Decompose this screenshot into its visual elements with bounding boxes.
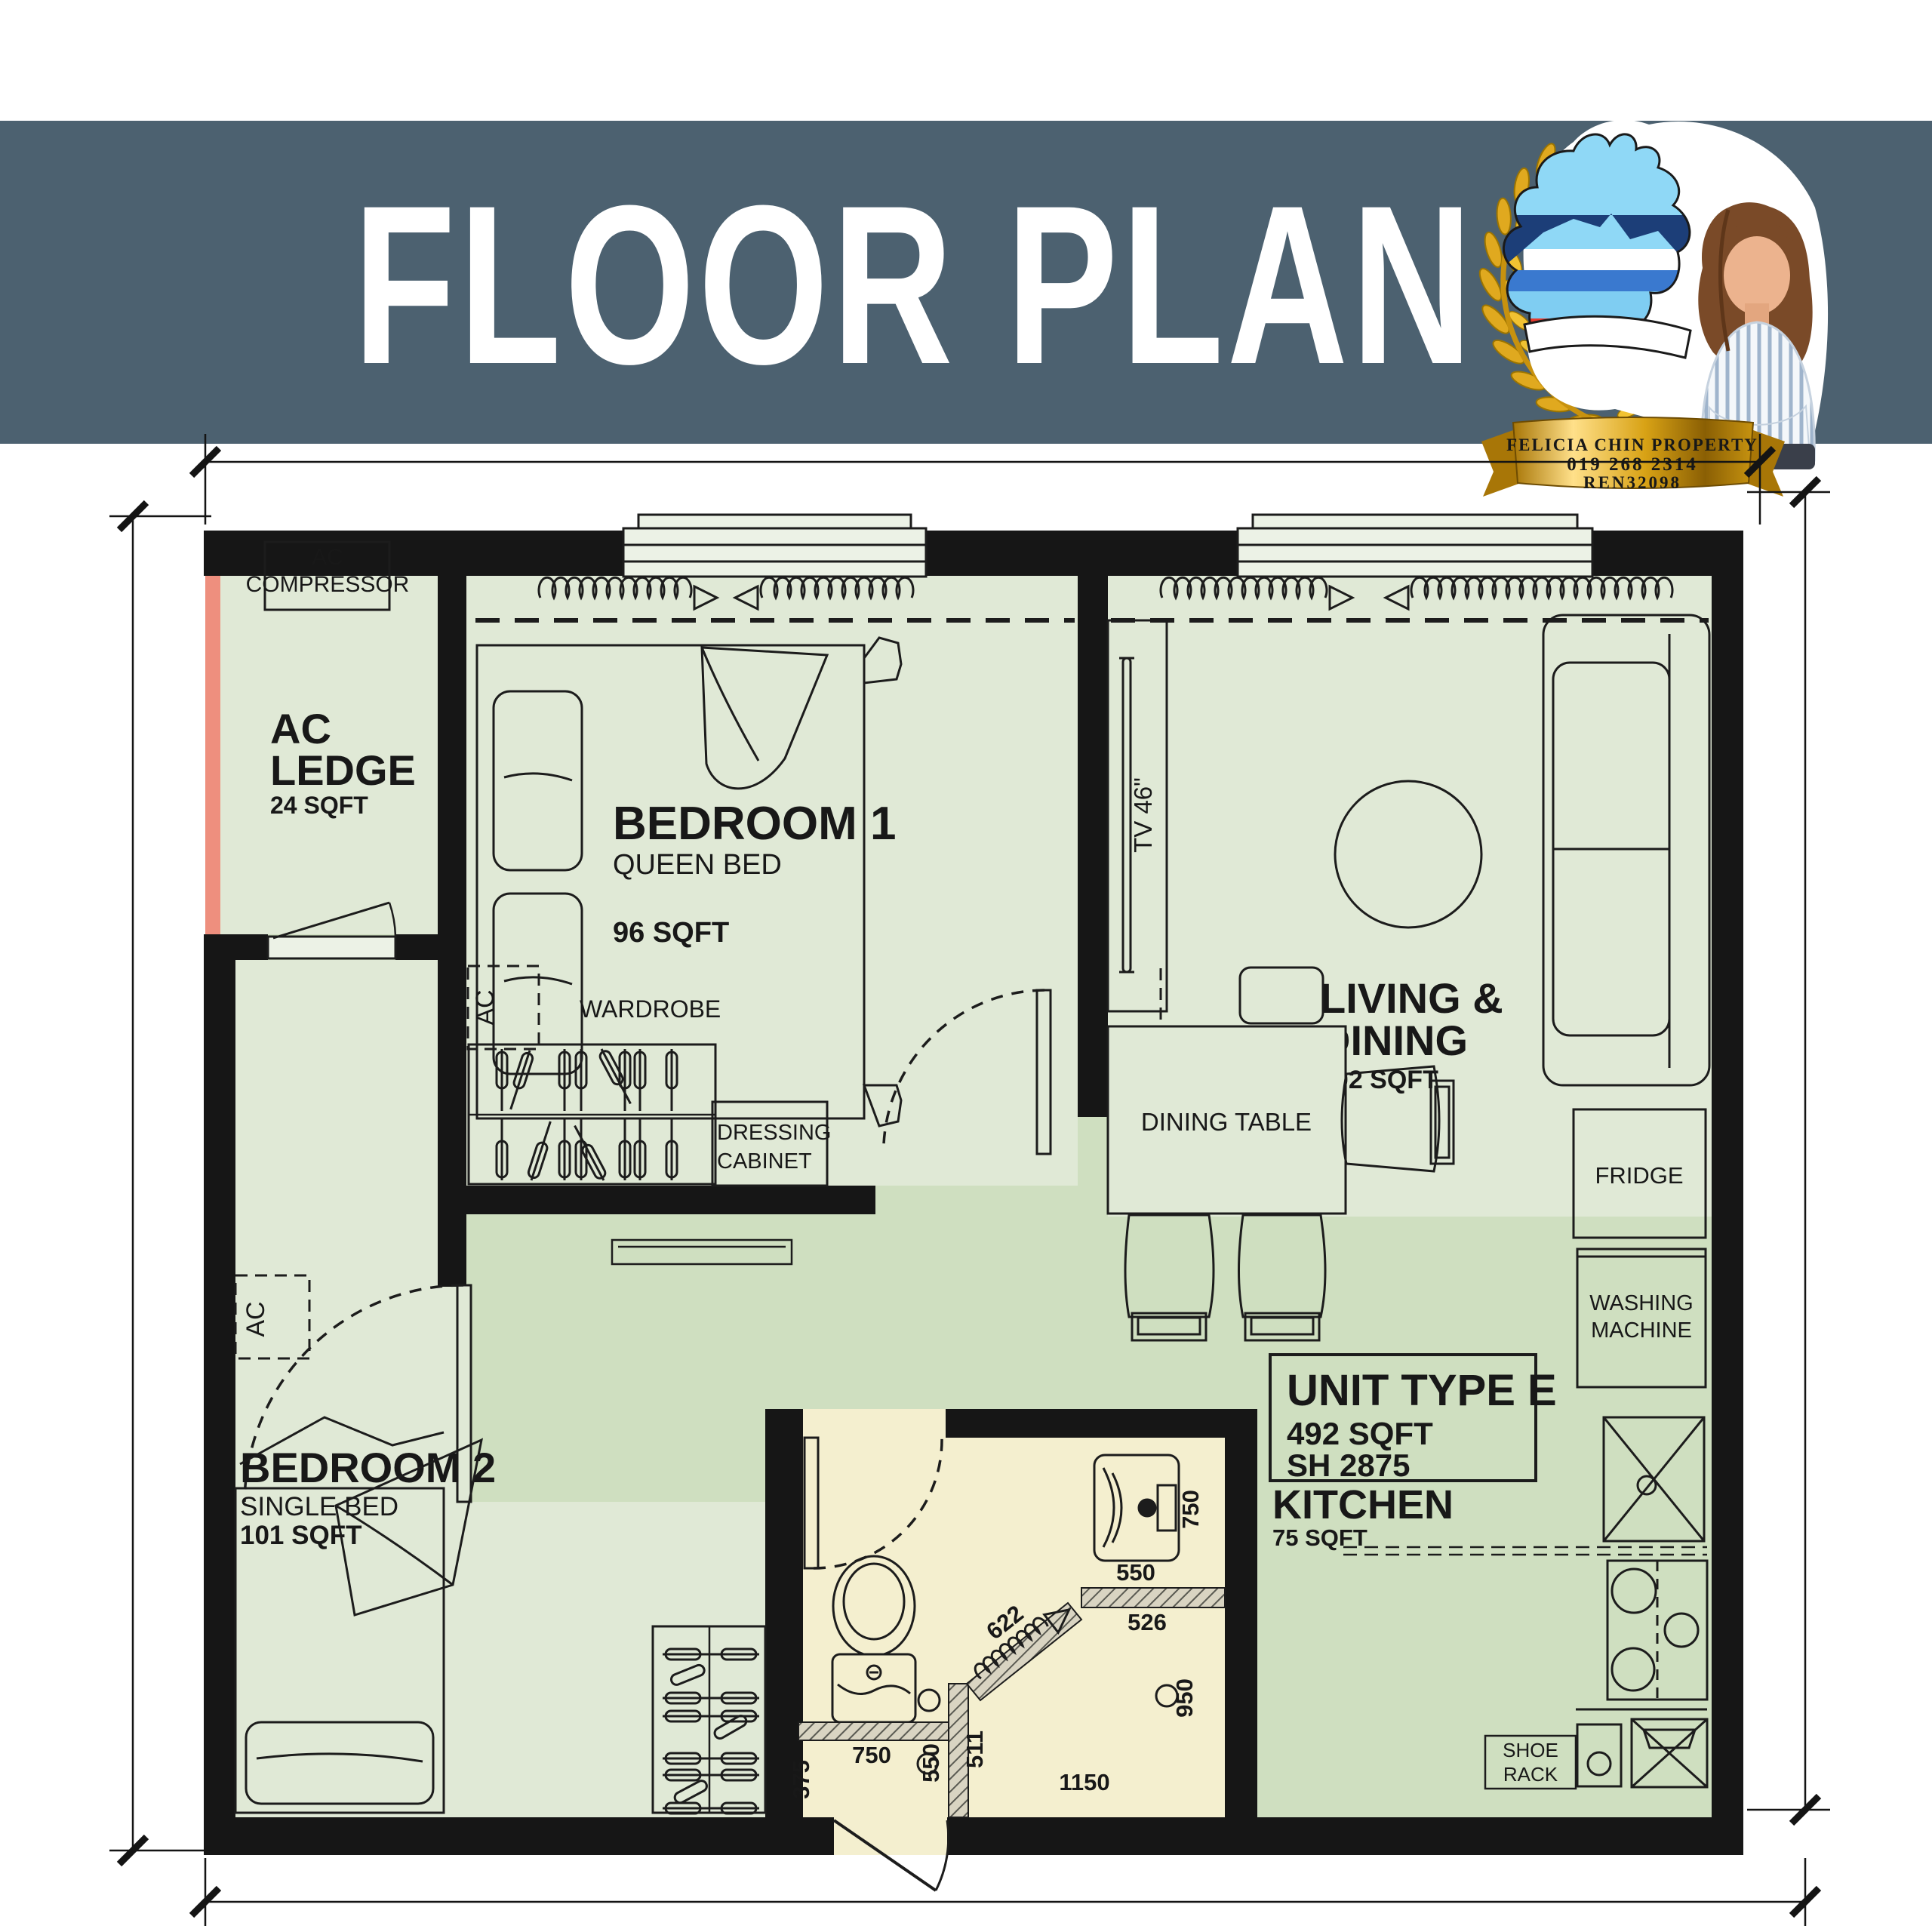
floor-bedroom2-a bbox=[235, 960, 466, 1817]
dim-750b: 750 bbox=[852, 1742, 891, 1768]
ac-compressor-label2: COMPRESSOR bbox=[246, 572, 410, 597]
living-title1: LIVING & bbox=[1320, 974, 1503, 1022]
unit-area: 492 SQFT bbox=[1287, 1416, 1433, 1451]
window-living bbox=[1238, 515, 1592, 577]
ac-ledge-title2: LEDGE bbox=[270, 746, 416, 794]
bedroom1-title: BEDROOM 1 bbox=[613, 798, 896, 850]
fridge-label: FRIDGE bbox=[1595, 1162, 1683, 1189]
bedroom1-bed-label: QUEEN BED bbox=[613, 849, 782, 881]
dim-950: 950 bbox=[1171, 1678, 1198, 1718]
dim-550b: 550 bbox=[918, 1743, 944, 1783]
dressing-label2: CABINET bbox=[717, 1149, 812, 1174]
shoe-label1: SHOE bbox=[1503, 1739, 1558, 1761]
dim-1150: 1150 bbox=[1059, 1769, 1109, 1795]
dressing-label1: DRESSING bbox=[717, 1121, 831, 1145]
ac-ledge-area: 24 SQFT bbox=[270, 792, 368, 819]
ac-ledge-title: AC bbox=[270, 705, 331, 752]
washing-label2: MACHINE bbox=[1591, 1318, 1692, 1343]
ac-label-bedroom2: AC bbox=[241, 1301, 270, 1337]
dim-511: 511 bbox=[961, 1730, 988, 1768]
unit-code: SH 2875 bbox=[1287, 1447, 1410, 1483]
window-bedroom1 bbox=[623, 515, 926, 577]
floor-bedroom2-b bbox=[466, 1502, 765, 1817]
floor-plan-page: FLOOR PLAN bbox=[0, 0, 1932, 1932]
dim-375: 375 bbox=[788, 1760, 814, 1799]
kitchen-title: KITCHEN bbox=[1272, 1482, 1454, 1527]
floor-plan: AC COMPRESSOR AC LEDGE 24 SQFT AC BEDROO… bbox=[0, 0, 1932, 1932]
bedroom1-area: 96 SQFT bbox=[613, 917, 729, 949]
dim-526: 526 bbox=[1128, 1609, 1167, 1635]
ledge-vent-strip bbox=[205, 576, 220, 934]
shoe-label2: RACK bbox=[1503, 1763, 1558, 1786]
dim-550: 550 bbox=[1116, 1559, 1155, 1586]
dim-750-basin: 750 bbox=[1177, 1490, 1204, 1529]
unit-type: UNIT TYPE E bbox=[1287, 1366, 1557, 1415]
ac-compressor-label: AC bbox=[312, 545, 343, 570]
dining-table-label: DINING TABLE bbox=[1141, 1108, 1312, 1136]
ac-label-bedroom1: AC bbox=[471, 989, 500, 1025]
tv-label: TV 46" bbox=[1129, 777, 1157, 853]
wardrobe-label: WARDROBE bbox=[580, 995, 721, 1023]
washing-label1: WASHING bbox=[1589, 1291, 1693, 1315]
floor-bedroom1 bbox=[466, 576, 1078, 1186]
bedroom2-bed-label: SINGLE BED bbox=[240, 1492, 398, 1521]
entry-threshold bbox=[834, 1817, 947, 1855]
